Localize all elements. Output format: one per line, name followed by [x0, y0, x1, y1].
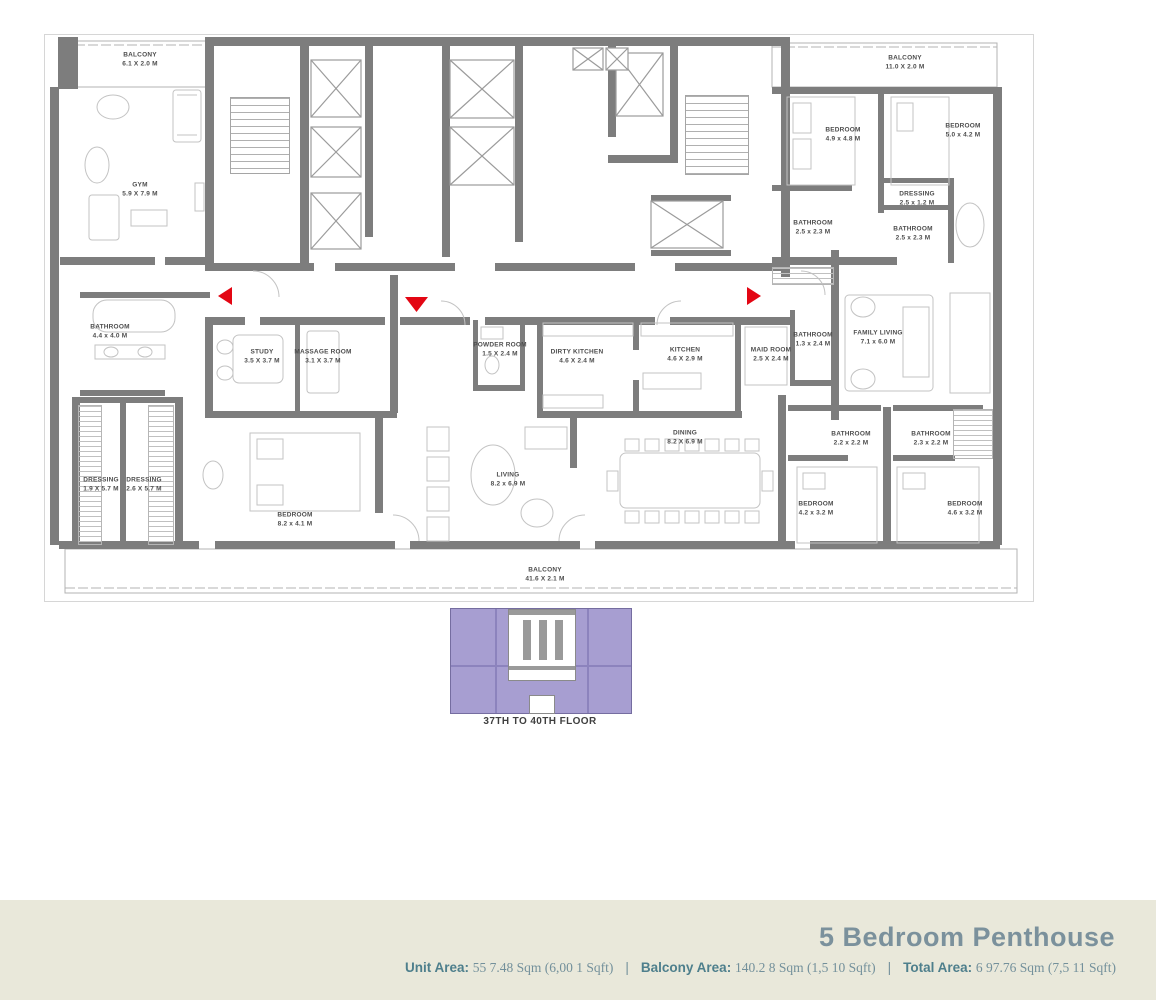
balcony-area-label: Balcony Area: [641, 960, 731, 975]
unit-area: Unit Area: 55 7.48 Sqm (6,00 1 Sqft) [405, 960, 613, 976]
room-label-study: STUDY3.5 X 3.7 M [244, 348, 279, 367]
key-plan-core [508, 609, 576, 681]
room-label-dressing-1: DRESSING1.9 X 5.7 M [83, 476, 119, 495]
room-label-maid-room: MAID ROOM2.5 X 2.4 M [751, 346, 791, 365]
stairs-icon [230, 97, 290, 174]
wardrobe-icon [953, 409, 993, 459]
page-title: 5 Bedroom Penthouse [819, 922, 1115, 953]
room-label-bathroom-maid: BATHROOM1.3 x 2.4 M [793, 331, 832, 350]
room-label-dirty-kitchen: DIRTY KITCHEN4.6 X 2.4 M [551, 348, 604, 367]
entry-arrow-down-icon [405, 297, 428, 312]
room-label-kitchen: KITCHEN4.6 X 2.9 M [667, 346, 702, 365]
balcony-area: Balcony Area: 140.2 8 Sqm (1,5 10 Sqft) [641, 960, 876, 976]
footer-band: 5 Bedroom Penthouse Unit Area: 55 7.48 S… [0, 900, 1156, 1000]
room-label-gym: GYM5.9 X 7.9 M [122, 181, 157, 200]
balcony-area-value: 140.2 8 Sqm (1,5 10 Sqft) [735, 960, 876, 975]
entrance-arrows [218, 287, 761, 312]
key-plan-thumbnail [450, 608, 632, 714]
area-summary: Unit Area: 55 7.48 Sqm (6,00 1 Sqft) | B… [405, 960, 1116, 976]
total-area-value: 6 97.76 Sqm (7,5 11 Sqft) [976, 960, 1116, 975]
walls [50, 37, 1002, 549]
floor-plan-drawing [45, 35, 1033, 601]
room-label-bathroom-5: BATHROOM2.3 x 2.2 M [911, 430, 950, 449]
room-label-powder-room: POWDER ROOM1.5 X 2.4 M [473, 341, 526, 360]
room-label-dining: DINING8.2 X 6.9 M [667, 429, 702, 448]
total-area: Total Area: 6 97.76 Sqm (7,5 11 Sqft) [903, 960, 1116, 976]
entry-arrow-left-icon [218, 287, 232, 305]
room-label-balcony-south: BALCONY41.6 X 2.1 M [525, 566, 564, 585]
total-area-label: Total Area: [903, 960, 972, 975]
unit-area-label: Unit Area: [405, 960, 469, 975]
separator: | [619, 960, 635, 975]
room-label-dressing-2: DRESSING2.6 X 5.7 M [126, 476, 162, 495]
room-label-dressing-3: DRESSING2.5 x 1.2 M [899, 190, 935, 209]
entry-arrow-right-icon [747, 287, 761, 305]
room-label-living: LIVING8.2 x 6.9 M [491, 471, 526, 490]
stairs-icon [685, 95, 749, 175]
room-label-balcony-ne: BALCONY11.0 X 2.0 M [886, 54, 925, 73]
room-label-bedroom-5: BEDROOM4.6 x 3.2 M [947, 500, 982, 519]
room-label-family-living: FAMILY LIVING7.1 x 6.0 M [853, 329, 902, 348]
room-label-bedroom-3: BEDROOM5.0 x 4.2 M [945, 122, 980, 141]
separator: | [882, 960, 898, 975]
room-label-bathroom-2: BATHROOM2.5 x 2.3 M [793, 219, 832, 238]
room-label-bedroom-4: BEDROOM4.2 x 3.2 M [798, 500, 833, 519]
room-label-bedroom-master: BEDROOM8.2 x 4.1 M [277, 511, 312, 530]
key-plan-caption: 37TH TO 40TH FLOOR [450, 716, 630, 727]
room-label-bathroom-3: BATHROOM2.5 x 2.3 M [893, 225, 932, 244]
room-label-massage-room: MASSAGE ROOM3.1 X 3.7 M [294, 348, 351, 367]
furniture-outlines [85, 90, 990, 543]
brochure-page: { "plan": { "rooms": [ {"name": "BALCONY… [0, 0, 1156, 1000]
room-label-bathroom-master: BATHROOM4.4 x 4.0 M [90, 323, 129, 342]
wardrobe-icon [772, 267, 834, 285]
room-label-bedroom-2: BEDROOM4.9 x 4.8 M [825, 126, 860, 145]
unit-area-value: 55 7.48 Sqm (6,00 1 Sqft) [473, 960, 614, 975]
room-label-balcony-nw: BALCONY6.1 X 2.0 M [122, 51, 157, 70]
floor-plan: BALCONY6.1 X 2.0 M GYM5.9 X 7.9 M BATHRO… [44, 34, 1034, 602]
room-label-bathroom-4: BATHROOM2.2 x 2.2 M [831, 430, 870, 449]
